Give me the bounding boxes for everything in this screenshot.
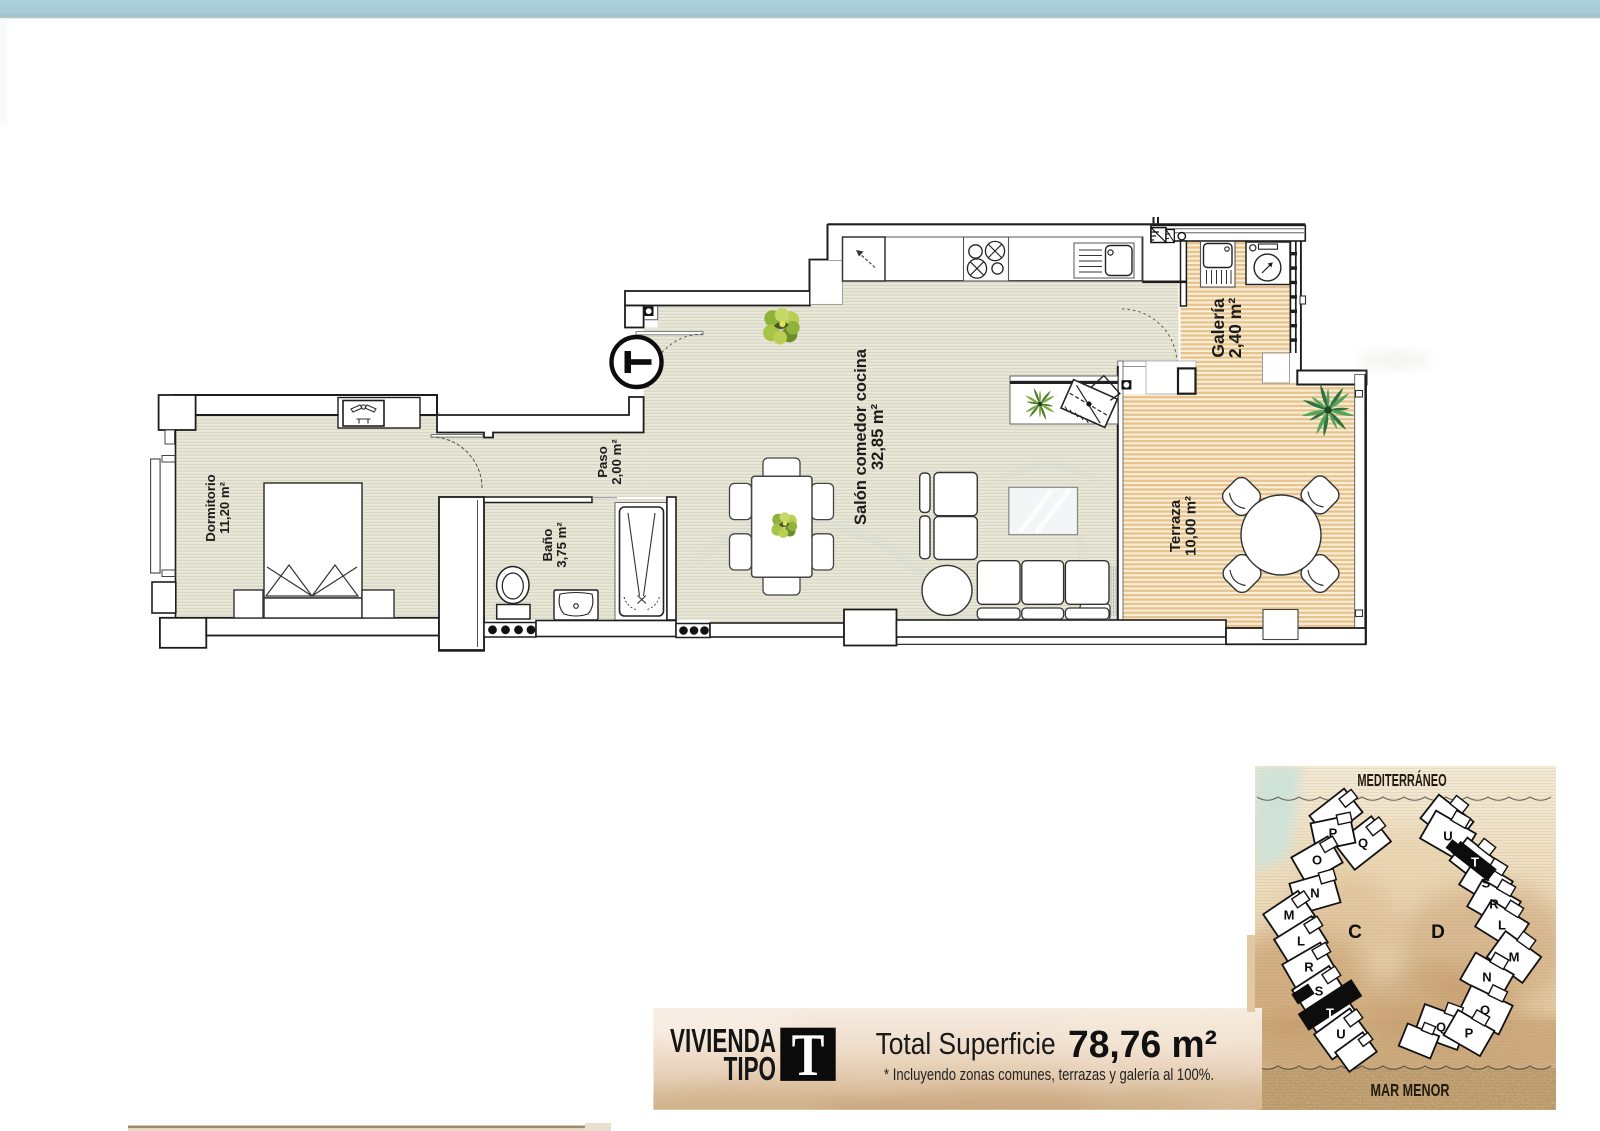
svg-text:2,40 m²: 2,40 m² [1225, 298, 1245, 358]
svg-text:11,20 m²: 11,20 m² [217, 481, 232, 534]
svg-text:Total Superficie: Total Superficie [876, 1027, 1056, 1061]
svg-text:Salón comedor cocina: Salón comedor cocina [852, 348, 870, 525]
svg-text:R: R [1304, 960, 1314, 975]
svg-text:S: S [1482, 876, 1491, 891]
svg-text:M: M [1284, 908, 1295, 923]
svg-text:L: L [1498, 918, 1506, 933]
svg-text:Q: Q [1436, 1020, 1446, 1035]
svg-text:M: M [1509, 950, 1520, 965]
svg-text:T: T [1326, 1006, 1334, 1021]
svg-text:C: C [1348, 922, 1362, 943]
svg-text:3,75 m²: 3,75 m² [554, 522, 569, 568]
svg-text:U: U [1443, 829, 1452, 844]
svg-text:Baño: Baño [540, 529, 555, 562]
svg-text:MEDITERRÁNEO: MEDITERRÁNEO [1357, 770, 1446, 790]
svg-text:Q: Q [1358, 836, 1368, 851]
svg-text:N: N [1482, 970, 1491, 985]
svg-text:P: P [1465, 1026, 1474, 1041]
svg-text:T: T [792, 1021, 825, 1088]
svg-text:10,00 m²: 10,00 m² [1183, 496, 1200, 556]
svg-text:Paso: Paso [595, 446, 610, 478]
svg-text:Dormitorio: Dormitorio [203, 474, 218, 541]
svg-text:D: D [1431, 922, 1445, 943]
svg-text:N: N [1310, 886, 1319, 901]
svg-text:MAR MENOR: MAR MENOR [1370, 1081, 1449, 1101]
svg-text:* Incluyendo zonas comunes, te: * Incluyendo zonas comunes, terrazas y g… [884, 1065, 1214, 1084]
svg-text:O: O [1480, 1003, 1490, 1018]
svg-text:L: L [1297, 934, 1305, 949]
svg-text:2,00 m²: 2,00 m² [609, 439, 624, 485]
svg-text:P: P [1329, 826, 1338, 841]
svg-text:S: S [1315, 984, 1324, 999]
svg-text:TIPO: TIPO [724, 1051, 776, 1089]
svg-text:R: R [1489, 897, 1499, 912]
svg-text:78,76 m²: 78,76 m² [1068, 1023, 1217, 1065]
svg-text:O: O [1312, 853, 1322, 868]
svg-text:T: T [1471, 855, 1479, 870]
svg-text:U: U [1336, 1027, 1345, 1042]
svg-text:32,85 m²: 32,85 m² [869, 403, 887, 470]
svg-text:Terraza: Terraza [1167, 499, 1184, 552]
